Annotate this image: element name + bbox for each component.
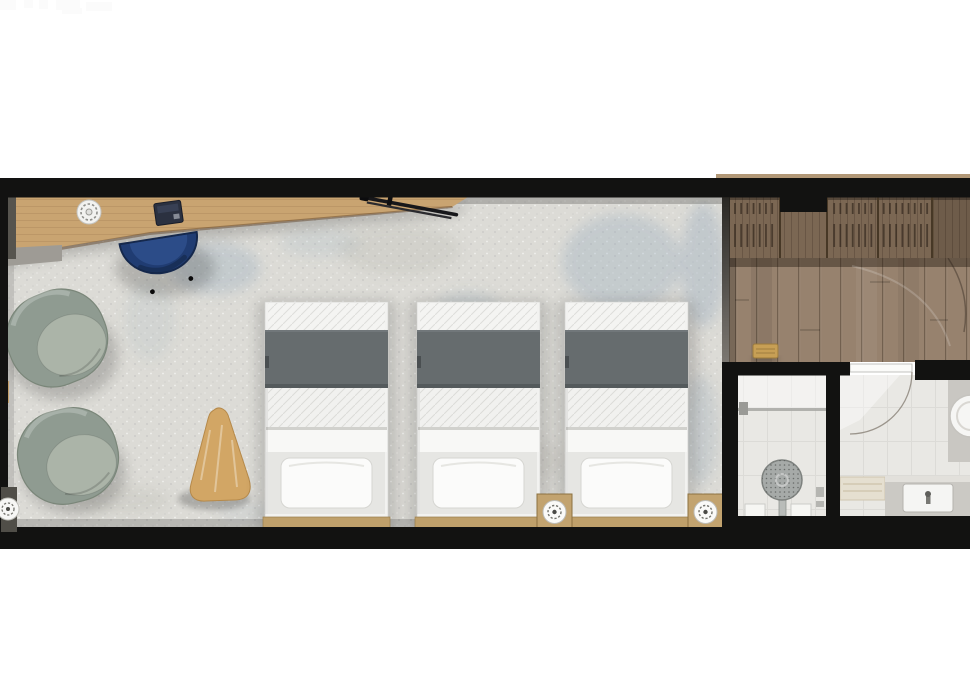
wall-accessory bbox=[816, 487, 824, 507]
vanity-counter bbox=[885, 476, 970, 516]
floor-plan-image bbox=[0, 0, 970, 700]
bathroom-wall-left bbox=[722, 362, 738, 528]
bed-2 bbox=[409, 300, 548, 530]
side-counter bbox=[948, 378, 970, 462]
desk-plate bbox=[77, 200, 101, 224]
bench-gold bbox=[753, 344, 778, 361]
niche-shelf-1 bbox=[745, 504, 765, 517]
nightstand-1 bbox=[537, 494, 572, 532]
wardrobe-hanging-1 bbox=[731, 203, 777, 247]
laptop bbox=[154, 200, 184, 226]
towel-shelf bbox=[840, 477, 885, 500]
floor-lamp-left bbox=[0, 487, 19, 532]
desk-side-panel bbox=[7, 197, 16, 259]
shower-room bbox=[738, 375, 826, 517]
wardrobe bbox=[729, 197, 970, 258]
shower-control bbox=[739, 402, 748, 415]
nightstand-2 bbox=[688, 494, 723, 532]
bathroom-door bbox=[850, 364, 912, 372]
bathroom-divider-wall bbox=[826, 362, 840, 528]
bathroom-wall-top-right bbox=[915, 360, 970, 380]
glass-screen bbox=[738, 408, 826, 411]
bed-1 bbox=[257, 300, 396, 530]
wardrobe-cabinet bbox=[934, 197, 970, 258]
bed-3 bbox=[557, 300, 696, 530]
wardrobe-hanging-2 bbox=[829, 203, 875, 247]
wardrobe-hanging-3 bbox=[879, 203, 931, 247]
niche-shelf-2 bbox=[791, 504, 811, 517]
wall-top bbox=[0, 178, 970, 198]
bathroom-wall-bottom bbox=[738, 516, 970, 529]
room-divider-edge bbox=[722, 197, 730, 362]
wall-bottom bbox=[0, 527, 970, 549]
floor-plan-page bbox=[0, 0, 970, 700]
wall-notch bbox=[780, 195, 827, 212]
bathroom-vanity-room bbox=[840, 364, 970, 517]
wardrobe-shadow bbox=[729, 258, 970, 267]
